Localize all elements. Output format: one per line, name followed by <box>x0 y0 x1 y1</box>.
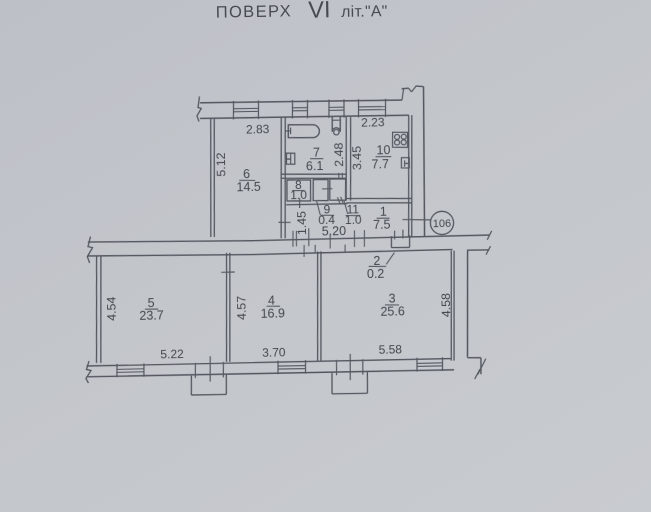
svg-text:4.54: 4.54 <box>104 296 119 321</box>
svg-text:2: 2 <box>373 254 380 268</box>
svg-text:VI: VI <box>308 0 331 23</box>
svg-text:4: 4 <box>268 293 275 307</box>
svg-text:1.0: 1.0 <box>290 188 307 202</box>
svg-text:5.12: 5.12 <box>214 152 229 177</box>
svg-text:16.9: 16.9 <box>260 306 285 321</box>
svg-text:14.5: 14.5 <box>236 180 261 195</box>
svg-text:106: 106 <box>433 218 452 230</box>
svg-text:6: 6 <box>243 167 250 181</box>
svg-text:25.6: 25.6 <box>380 305 405 320</box>
svg-text:0.2: 0.2 <box>367 267 385 281</box>
svg-text:5.20: 5.20 <box>322 224 347 239</box>
svg-text:7: 7 <box>313 145 320 159</box>
svg-text:2.83: 2.83 <box>246 122 270 136</box>
svg-text:3.45: 3.45 <box>350 146 365 171</box>
svg-text:3.70: 3.70 <box>262 345 286 359</box>
svg-text:4.57: 4.57 <box>235 296 250 321</box>
svg-text:23.7: 23.7 <box>139 308 164 323</box>
svg-text:2.23: 2.23 <box>361 115 385 129</box>
svg-text:7.5: 7.5 <box>373 217 391 231</box>
svg-text:5.58: 5.58 <box>378 342 402 356</box>
svg-text:літ."А": літ."А" <box>341 3 388 21</box>
svg-text:1.0: 1.0 <box>345 213 362 227</box>
svg-text:7.7: 7.7 <box>371 157 389 171</box>
svg-text:2.48: 2.48 <box>332 142 347 167</box>
svg-text:10: 10 <box>376 143 390 157</box>
svg-text:5.22: 5.22 <box>160 347 184 361</box>
svg-text:ПОВЕРХ: ПОВЕРХ <box>216 2 293 21</box>
svg-text:3: 3 <box>388 291 395 305</box>
svg-text:6.1: 6.1 <box>306 159 324 173</box>
